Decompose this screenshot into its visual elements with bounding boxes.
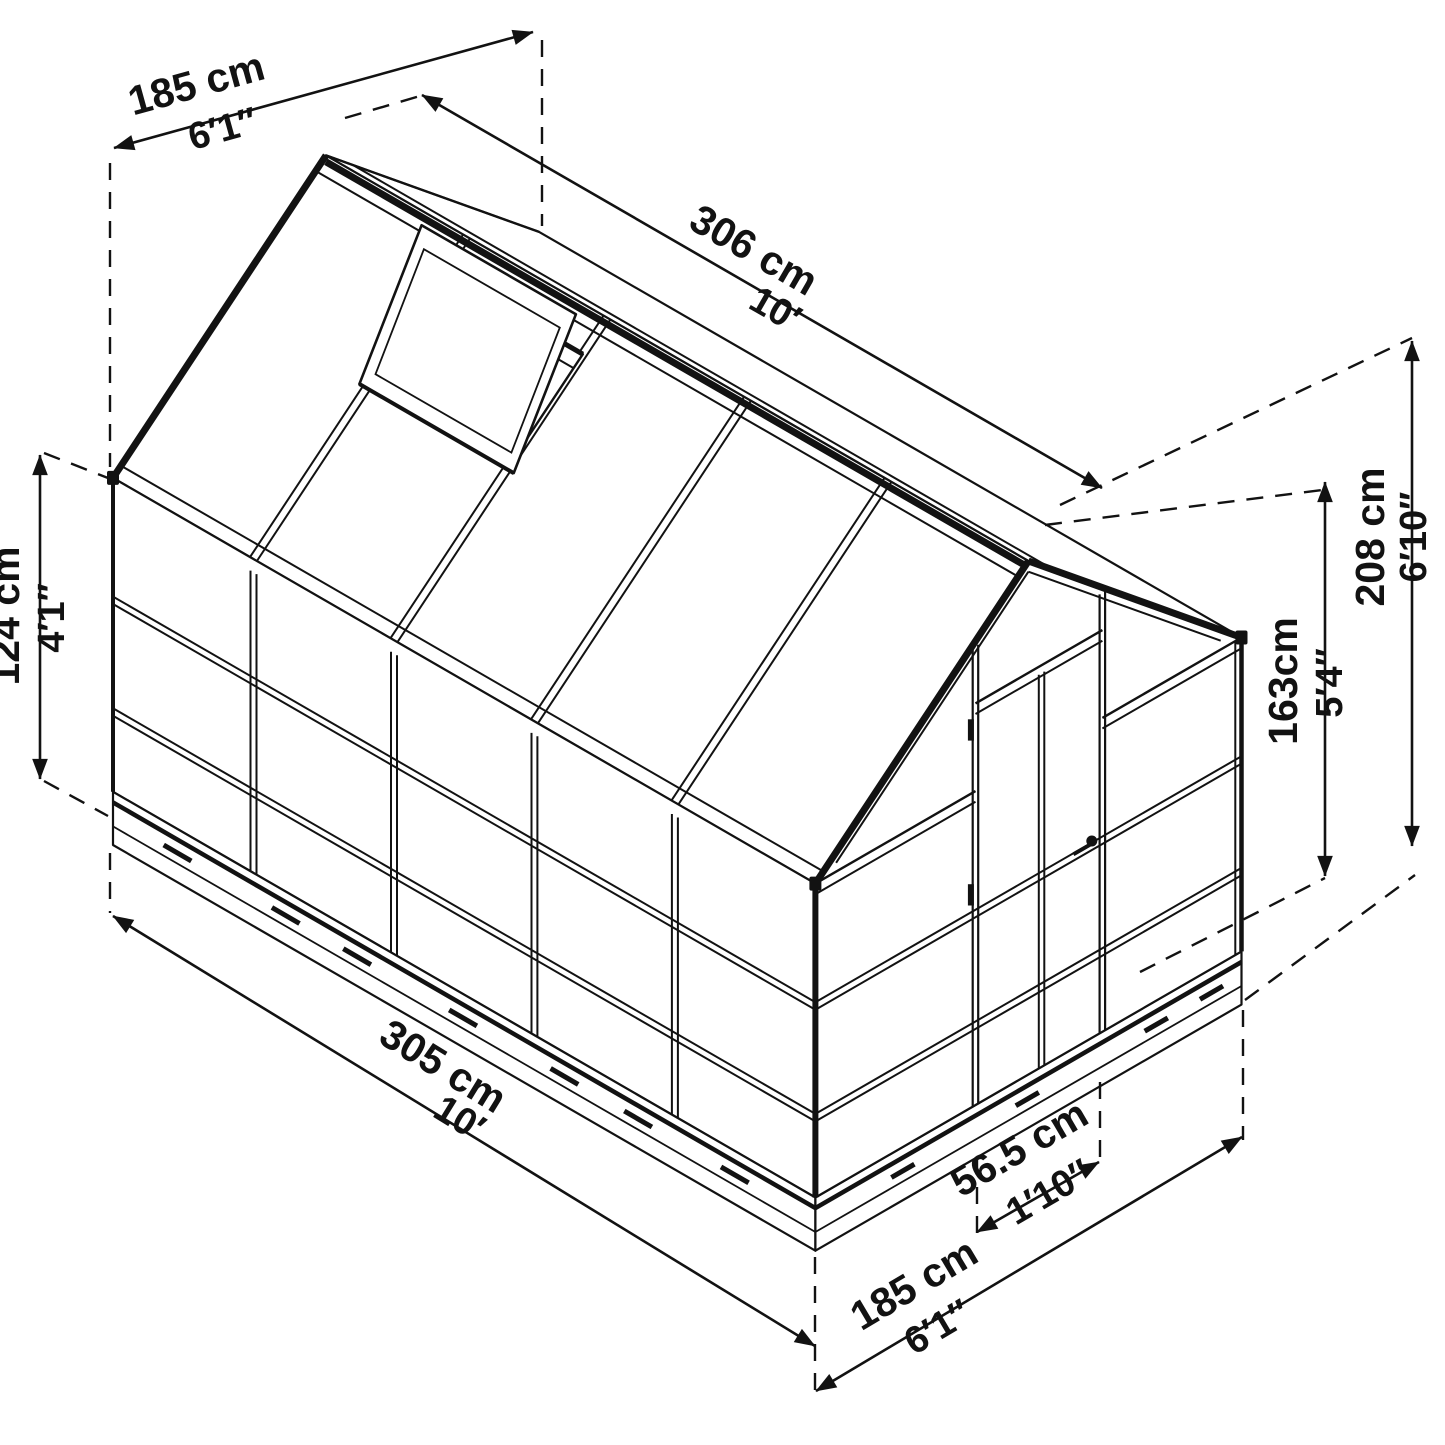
greenhouse-dimension-diagram: 185 cm 6′1″ 306 cm 10′ 124 cm 4′1″ 208 c… — [0, 0, 1445, 1445]
extension-line — [1245, 875, 1415, 1000]
dim-door-height-cm-label: 163cm — [1260, 617, 1306, 745]
extension-line — [1045, 490, 1322, 525]
dim-back-width-imperial-label: 6′1″ — [184, 100, 262, 159]
dim-door-height-imperial-label: 5′4″ — [1309, 648, 1351, 718]
dim-peak-height-cm-label: 208 cm — [1347, 467, 1393, 606]
eave-corner-cap — [1236, 631, 1248, 645]
dim-peak-height-imperial-label: 6′10″ — [1393, 492, 1435, 583]
extension-line — [44, 781, 108, 816]
eave-corner-cap — [107, 471, 119, 485]
eave-corner-cap — [809, 877, 821, 891]
diagram-canvas: 185 cm 6′1″ 306 cm 10′ 124 cm 4′1″ 208 c… — [0, 0, 1445, 1445]
greenhouse-structure — [107, 155, 1248, 1250]
extension-line — [44, 453, 108, 478]
extension-line — [345, 96, 420, 118]
dim-side-wall-height-cm-label: 124 cm — [0, 546, 28, 685]
dim-side-wall-height-imperial-label: 4′1″ — [31, 583, 73, 653]
